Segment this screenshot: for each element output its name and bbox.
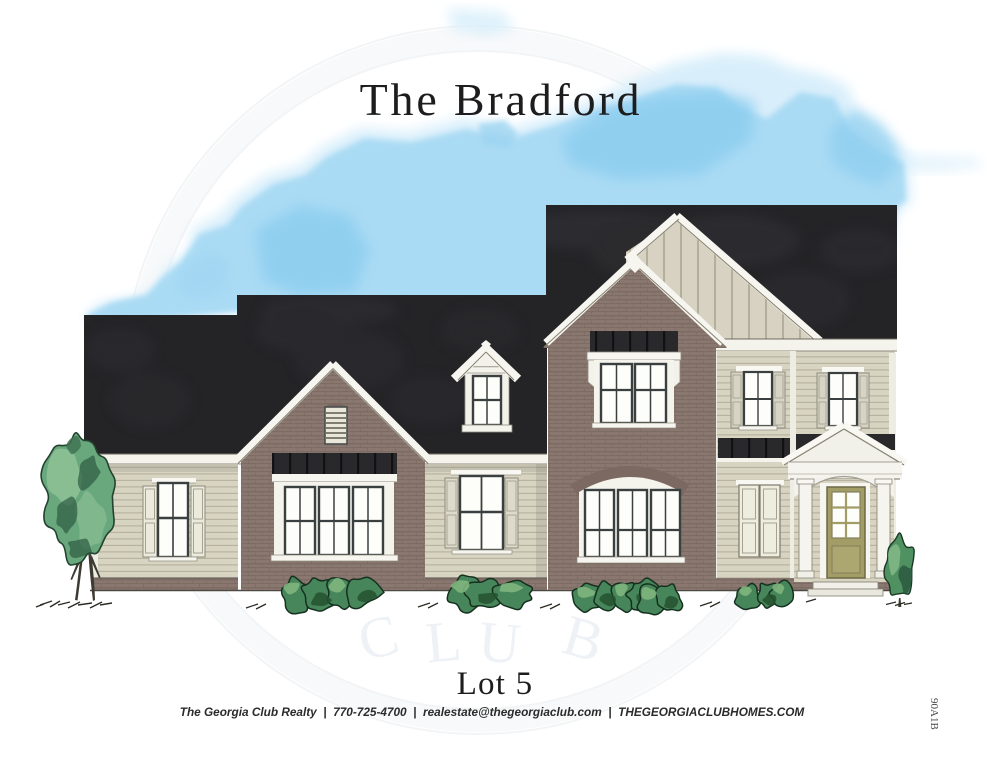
svg-text:90A1B: 90A1B <box>928 698 940 730</box>
svg-text:The Bradford: The Bradford <box>360 74 643 125</box>
svg-text:The Georgia Club Realty | 77: The Georgia Club Realty | 770-725-4700 |… <box>180 705 806 719</box>
svg-text:C: C <box>352 601 405 673</box>
svg-text:Lot 5: Lot 5 <box>457 666 534 702</box>
